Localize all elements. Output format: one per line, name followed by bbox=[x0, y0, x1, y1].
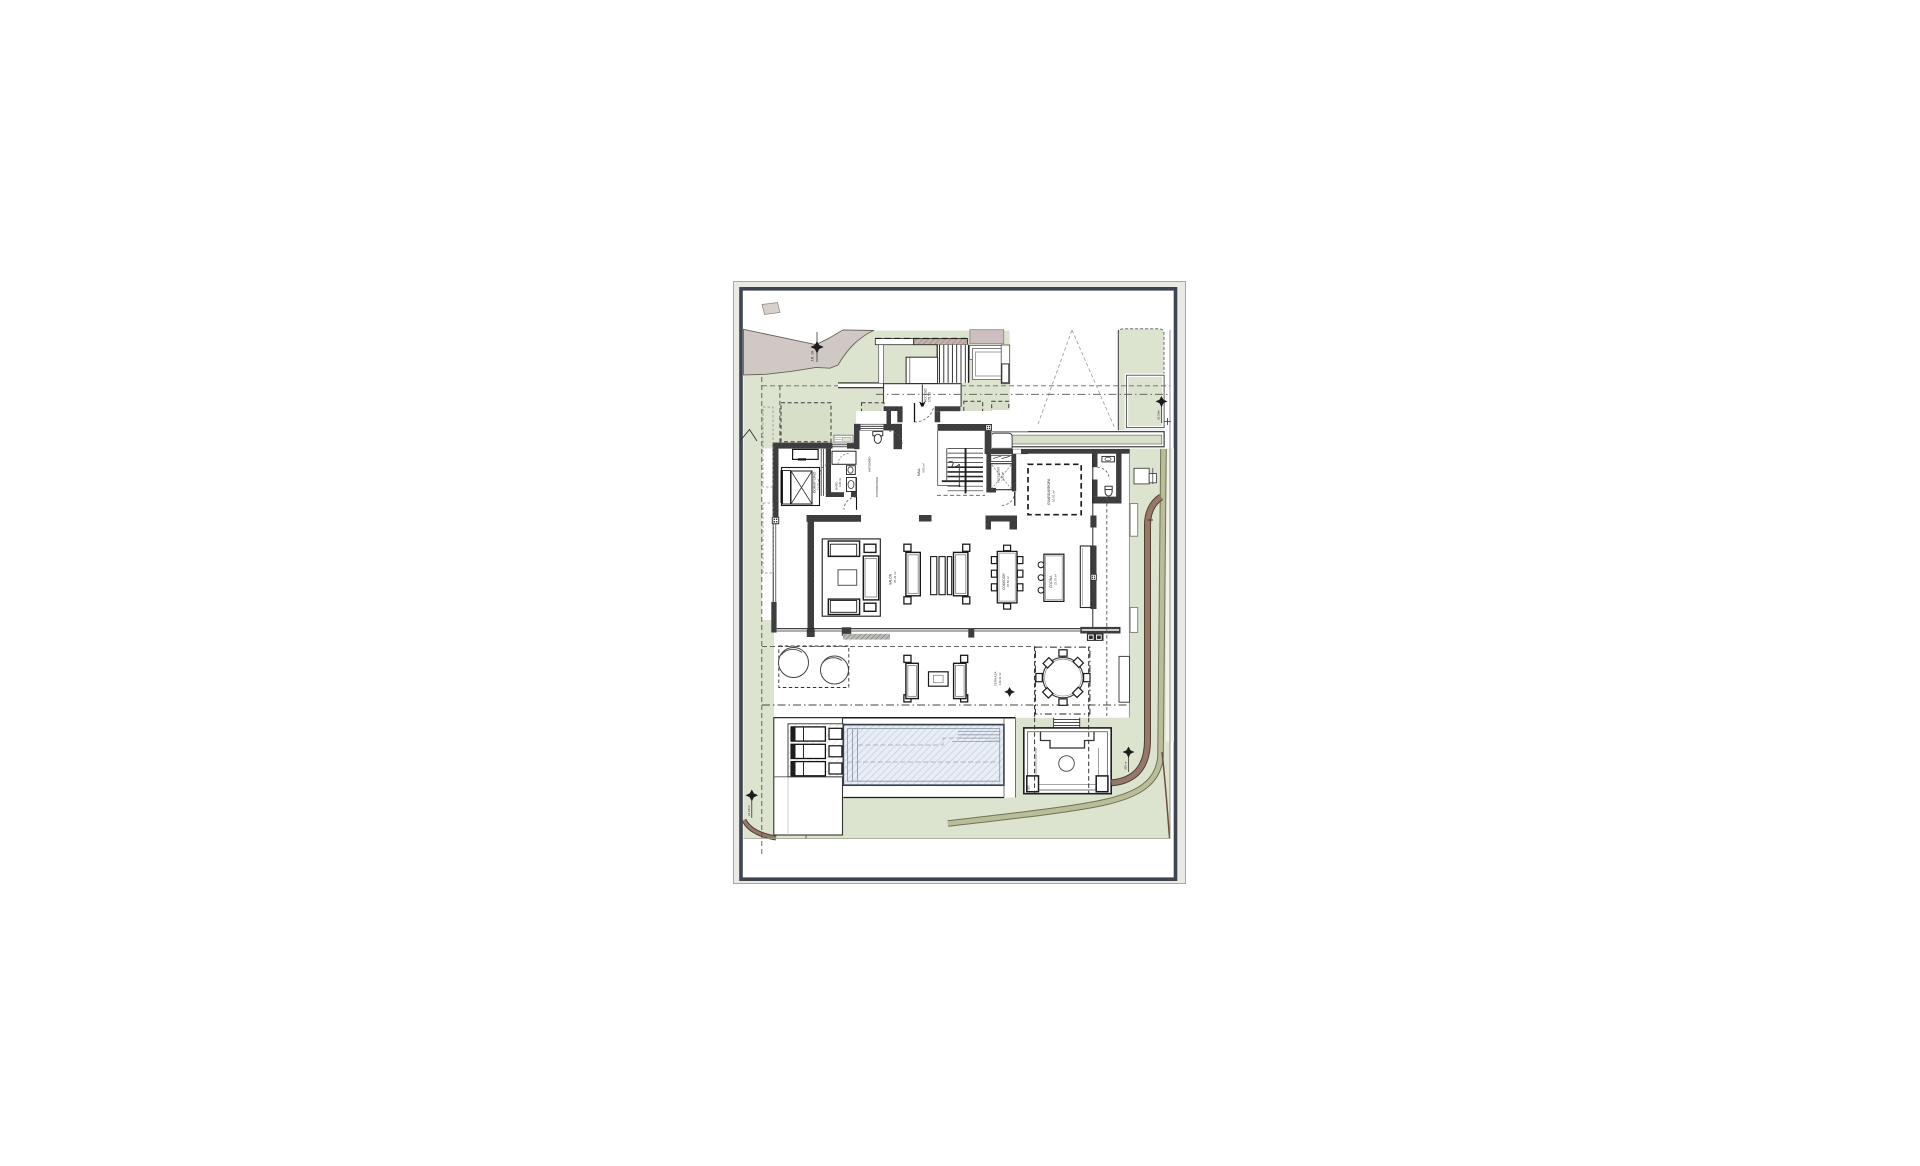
svg-text:J.R. 08: J.R. 08 bbox=[811, 351, 815, 362]
svg-text:10.01 m²: 10.01 m² bbox=[1052, 490, 1056, 502]
svg-text:ASCENSOR: ASCENSOR bbox=[997, 467, 1001, 483]
svg-text:366: 366 bbox=[1027, 785, 1031, 790]
svg-text:116.10 m²: 116.10 m² bbox=[998, 673, 1002, 685]
svg-text:ANTEBAÑO: ANTEBAÑO bbox=[867, 456, 872, 472]
svg-text:SALÓN: SALÓN bbox=[888, 573, 893, 585]
svg-text:GUARDARROPA: GUARDARROPA bbox=[1047, 478, 1051, 505]
svg-text:15.56 m²: 15.56 m² bbox=[1006, 576, 1010, 587]
svg-text:24.08 m: 24.08 m bbox=[747, 805, 751, 816]
svg-text:DISTRIBUIDOR: DISTRIBUIDOR bbox=[875, 477, 879, 497]
svg-text:11.10 m²: 11.10 m² bbox=[817, 479, 821, 490]
svg-text:3.10 m²: 3.10 m² bbox=[1001, 472, 1005, 481]
svg-text:4.05 m²: 4.05 m² bbox=[921, 463, 925, 473]
svg-text:BAÑO: BAÑO bbox=[834, 481, 839, 490]
svg-text:178.50: 178.50 bbox=[928, 392, 932, 402]
svg-text:HALL: HALL bbox=[917, 468, 921, 476]
svg-text:35.31 m²: 35.31 m² bbox=[893, 572, 897, 583]
svg-text:23.07 m²: 23.07 m² bbox=[1053, 574, 1057, 585]
svg-text:358 m: 358 m bbox=[1124, 761, 1128, 770]
svg-text:4.80 m²: 4.80 m² bbox=[838, 478, 842, 487]
svg-text:28.50m: 28.50m bbox=[1157, 409, 1161, 420]
